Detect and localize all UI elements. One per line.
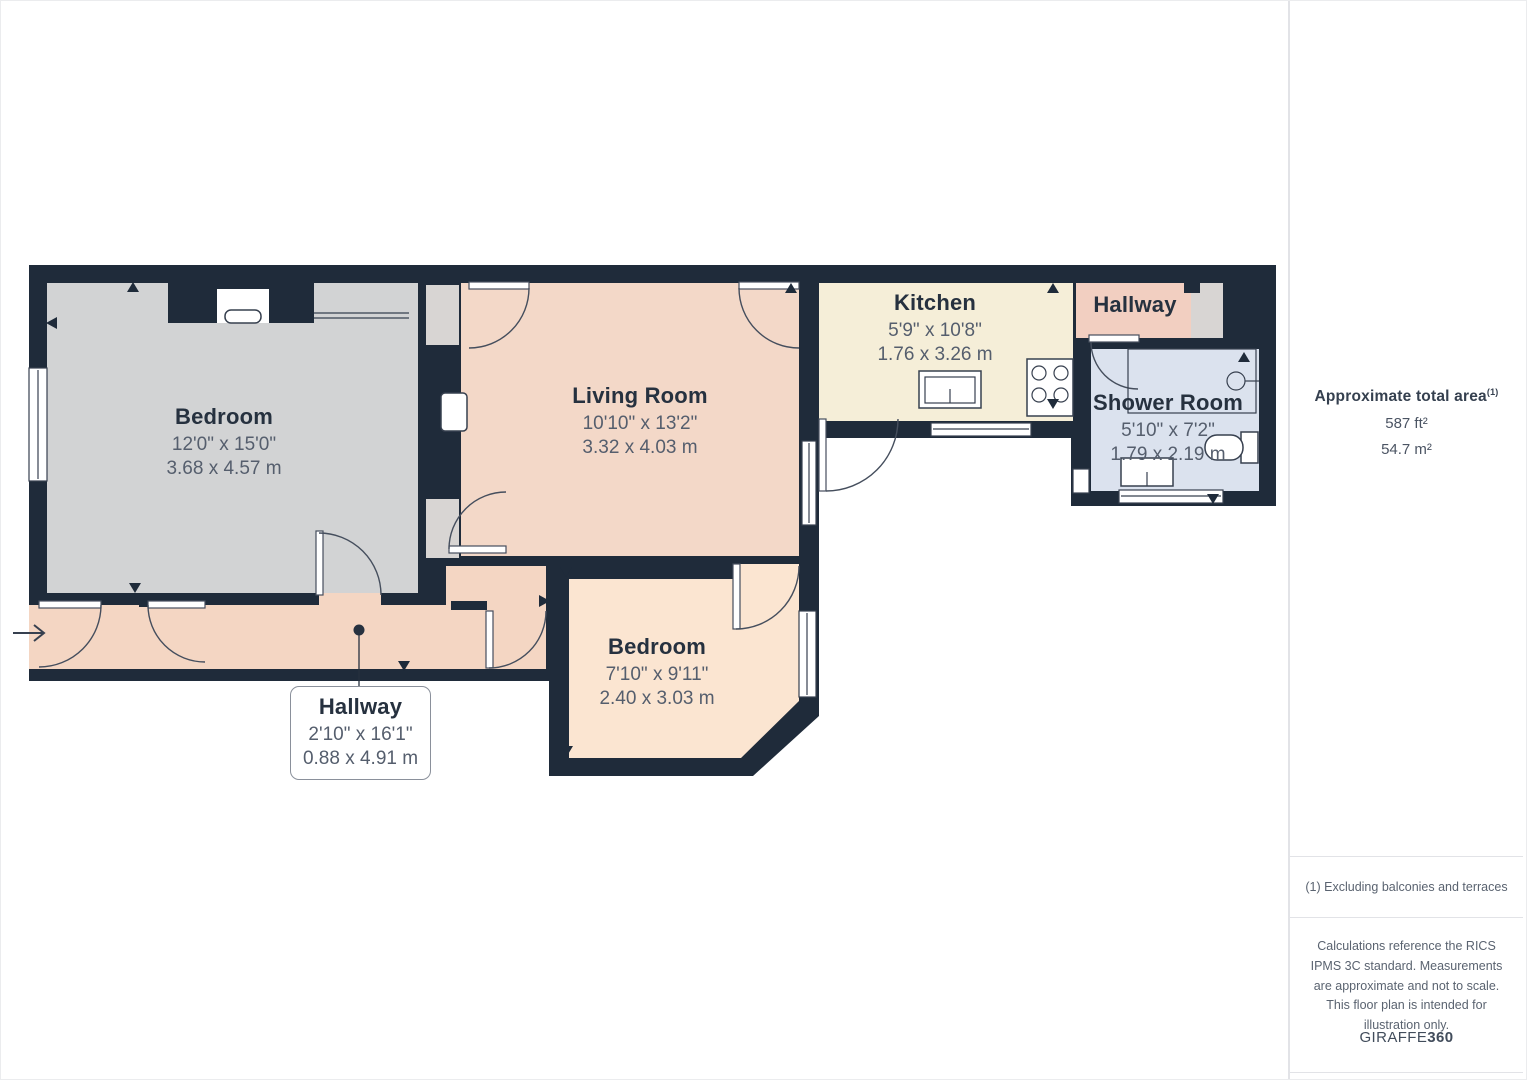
room-label-shower-room: Shower Room 5'10" x 7'2" 1.79 x 2.19 m xyxy=(1093,390,1243,466)
door-leaf-vestibule-hall xyxy=(486,611,493,668)
room-dims-imperial: 7'10" x 9'11" xyxy=(599,663,714,687)
room-dims: 5'9" x 10'8" 1.76 x 3.26 m xyxy=(877,319,992,366)
room-dims-imperial: 10'10" x 13'2" xyxy=(572,412,707,436)
door-leaf-hallway-2 xyxy=(148,601,205,608)
closet-upper xyxy=(426,285,459,345)
door-leaf-bedroom-bottom xyxy=(733,564,740,629)
room-dims-metric: 0.88 x 4.91 m xyxy=(299,747,422,771)
room-callout-hallway-bottom: Hallway 2'10" x 16'1" 0.88 x 4.91 m xyxy=(290,686,431,780)
room-dims-metric: 2.40 x 3.03 m xyxy=(599,687,714,711)
room-dims-metric: 3.68 x 4.57 m xyxy=(166,457,281,481)
room-dims-imperial: 2'10" x 16'1" xyxy=(299,723,422,747)
room-dims-imperial: 5'10" x 7'2" xyxy=(1093,419,1243,443)
brand-logo: GIRAFFE360 xyxy=(1290,1029,1523,1046)
room-dims-imperial: 12'0" x 15'0" xyxy=(166,433,281,457)
room-dims: 5'10" x 7'2" 1.79 x 2.19 m xyxy=(1093,419,1243,466)
room-dims-metric: 3.32 x 4.03 m xyxy=(572,436,707,460)
door-leaf-kitchen-exterior xyxy=(819,419,826,491)
room-name: Living Room xyxy=(572,383,707,409)
room-dims-metric: 1.79 x 2.19 m xyxy=(1093,443,1243,467)
living-radiator xyxy=(441,393,467,431)
room-name: Hallway xyxy=(1093,292,1176,318)
callout-leader-dot xyxy=(354,625,365,636)
room-label-bedroom-left: Bedroom 12'0" x 15'0" 3.68 x 4.57 m xyxy=(166,404,281,480)
room-dims-imperial: 5'9" x 10'8" xyxy=(877,319,992,343)
brand-name-normal: GIRAFFE xyxy=(1359,1029,1427,1046)
room-name: Kitchen xyxy=(877,290,992,316)
floor-hallway-bottom xyxy=(29,605,546,669)
room-label-kitchen: Kitchen 5'9" x 10'8" 1.76 x 3.26 m xyxy=(877,290,992,366)
wall-tab-hallway-top xyxy=(1184,283,1200,293)
room-dims: 12'0" x 15'0" 3.68 x 4.57 m xyxy=(166,433,281,480)
room-label-hallway-top: Hallway xyxy=(1093,292,1176,318)
total-area-title-text: Approximate total area xyxy=(1315,388,1487,405)
room-label-living-room: Living Room 10'10" x 13'2" 3.32 x 4.03 m xyxy=(572,383,707,459)
room-dims-metric: 1.76 x 3.26 m xyxy=(877,343,992,367)
total-area-m: 54.7 m² xyxy=(1290,441,1523,458)
door-leaf-shower xyxy=(1089,335,1139,342)
door-leaf-entrance xyxy=(39,601,101,608)
floorplan-canvas: Bedroom 12'0" x 15'0" 3.68 x 4.57 m Livi… xyxy=(0,0,1527,1080)
total-area-title: Approximate total area(1) xyxy=(1290,387,1523,406)
room-name: Bedroom xyxy=(166,404,281,430)
door-leaf-vestibule-living xyxy=(449,546,506,553)
room-dims: 2'10" x 16'1" 0.88 x 4.91 m xyxy=(299,723,422,770)
sidebar-bottom-rule xyxy=(1290,1072,1523,1073)
footnote: (1) Excluding balconies and terraces xyxy=(1290,856,1523,918)
fireplace-hearth xyxy=(225,310,261,323)
room-dims: 7'10" x 9'11" 2.40 x 3.03 m xyxy=(599,663,714,710)
door-leaf-bedroom-left xyxy=(316,531,323,595)
total-area-ft: 587 ft² xyxy=(1290,415,1523,432)
room-name: Bedroom xyxy=(599,634,714,660)
room-dims: 10'10" x 13'2" 3.32 x 4.03 m xyxy=(572,412,707,459)
total-area-footnote-marker: (1) xyxy=(1487,387,1499,397)
wall-stub-vestibule xyxy=(451,601,487,610)
brand-name-bold: 360 xyxy=(1427,1029,1453,1046)
floor-vestibule xyxy=(446,566,546,605)
room-label-bedroom-bottom: Bedroom 7'10" x 9'11" 2.40 x 3.03 m xyxy=(599,634,714,710)
total-area-block: Approximate total area(1) 587 ft² 54.7 m… xyxy=(1290,387,1523,458)
room-name: Hallway xyxy=(299,694,422,720)
disclaimer: Calculations reference the RICS IPMS 3C … xyxy=(1304,937,1509,1036)
floor-doorway-gap xyxy=(319,593,381,605)
room-name: Shower Room xyxy=(1093,390,1243,416)
sidebar: Approximate total area(1) 587 ft² 54.7 m… xyxy=(1288,1,1523,1080)
window-kitchen-side xyxy=(1073,469,1089,493)
door-leaf-living-tl xyxy=(469,282,529,289)
